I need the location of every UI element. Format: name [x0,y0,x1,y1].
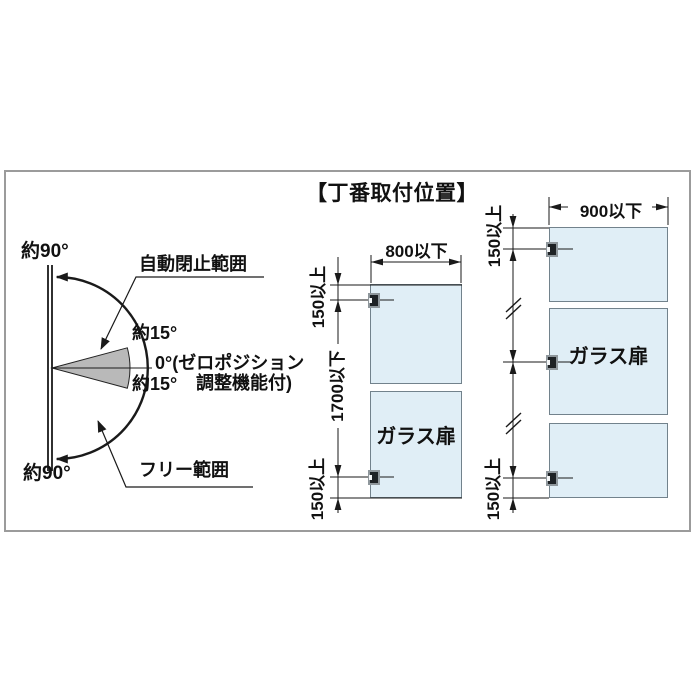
right-door-bottom-offset-dim: 150以上 [484,447,504,531]
middle-door-dimensions [330,255,462,513]
hinge-icon [546,242,558,257]
angle-90-top-label: 約90° [21,242,69,263]
middle-door-top-offset-dim: 150以上 [309,255,329,339]
right-door-top-offset-dim: 150以上 [485,194,505,278]
angle-90-bottom-label: 約90° [23,464,71,485]
middle-door-width-dim: 800以下 [371,237,462,262]
middle-door-height-dim: 1700以下 [328,344,348,428]
hinge-icon [546,471,558,486]
free-range-label: フリー範囲 [139,461,229,481]
hinge-slot-icon [369,298,372,303]
right-door-width-dim: 900以下 [571,197,651,222]
hinge-slot-icon [547,247,550,252]
hinge-icon [368,470,380,485]
diagram-title: 【丁番取付位置】 [306,177,478,207]
zero-position-label-line2: 調整機能付) [196,374,292,394]
middle-door-dim-arrows [335,259,461,510]
angle-15-upper-label: 約15° [132,324,177,344]
auto-close-range-label: 自動閉止範囲 [139,255,247,275]
auto-close-callout [101,277,264,349]
hinge-slot-icon [547,476,550,481]
right-door-label: ガラス扉 [549,340,668,369]
hinge-slot-icon [369,475,372,480]
zero-position-label-line1: 0°(ゼロポジション [155,354,304,374]
angle-15-lower-label: 約15° [132,375,177,395]
middle-door-bottom-offset-dim: 150以上 [308,447,328,531]
diagram-canvas: 【丁番取付位置】 約90° 約90° 自動閉止範囲 約15° 0°(ゼロポジショ… [0,0,700,700]
middle-door-label: ガラス扉 [370,420,462,449]
hinge-icon [368,293,380,308]
